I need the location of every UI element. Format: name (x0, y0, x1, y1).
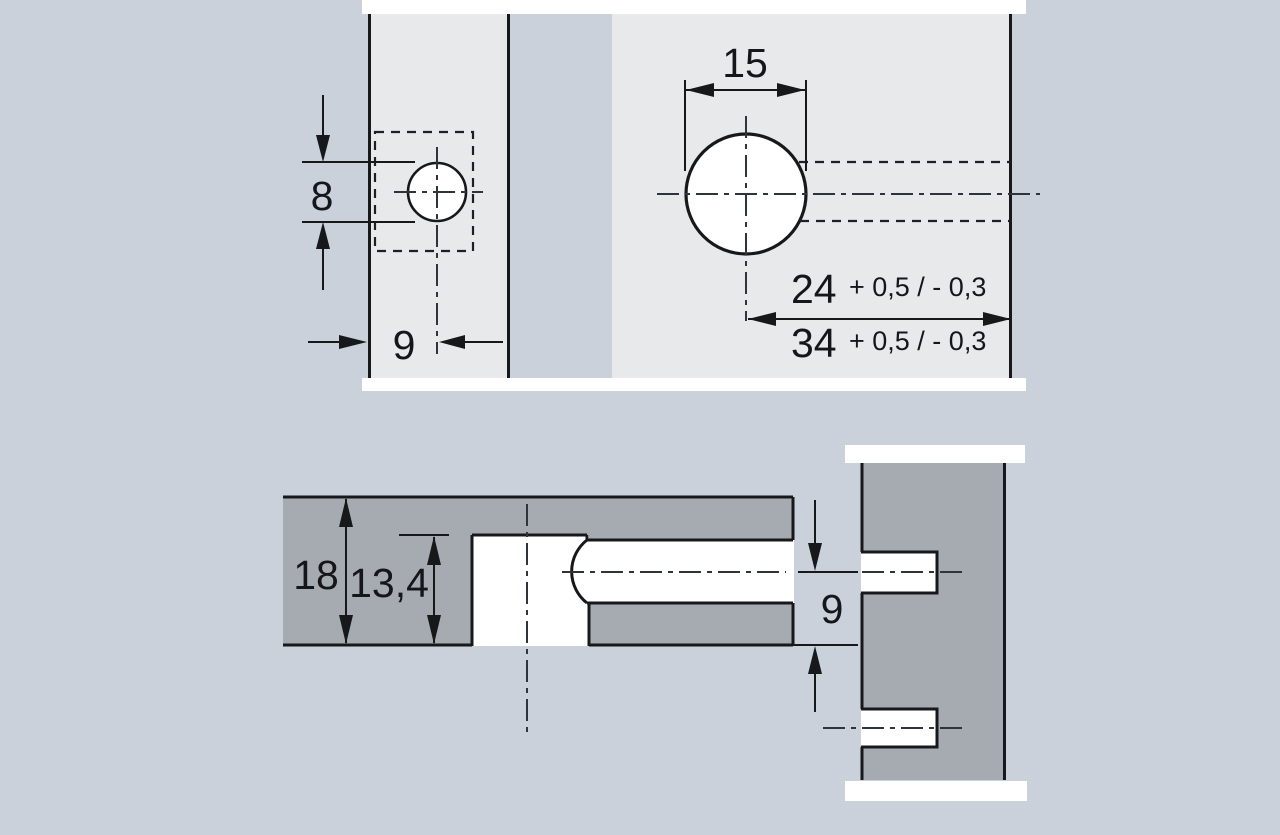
dim-label-34: 34 (791, 320, 837, 366)
drawing-svg: 8 9 15 24 + 0,5 / - 0,3 34 + 0,5 / - 0,3 (0, 0, 1280, 835)
dim-label-9-section: 9 (821, 586, 844, 632)
arrowhead (808, 543, 822, 571)
dim-label-15: 15 (722, 40, 768, 86)
break-bar (845, 445, 1025, 463)
dim-tolerance-34: + 0,5 / - 0,3 (849, 326, 986, 356)
dim-label-9: 9 (393, 322, 416, 368)
break-bar (362, 378, 1026, 391)
dim-label-24: 24 (791, 266, 837, 312)
break-bar (362, 0, 1026, 14)
dim-label-18: 18 (293, 552, 339, 598)
top-edge-view (368, 14, 510, 378)
cup-housing-pocket (472, 535, 589, 646)
arrowhead (316, 135, 330, 162)
dim-tolerance-24: + 0,5 / - 0,3 (849, 272, 986, 302)
section-panel-vertical (823, 445, 1027, 801)
technical-drawing-canvas: 8 9 15 24 + 0,5 / - 0,3 34 + 0,5 / - 0,3 (0, 0, 1280, 835)
dim-label-13-4: 13,4 (349, 560, 429, 606)
arrowhead (339, 335, 367, 349)
dimension-center-9: 9 (790, 500, 858, 712)
section-panel-horizontal (283, 497, 794, 736)
arrowhead (808, 646, 822, 674)
break-bar (845, 781, 1027, 801)
dim-label-8: 8 (311, 173, 334, 219)
arrowhead (316, 222, 330, 249)
